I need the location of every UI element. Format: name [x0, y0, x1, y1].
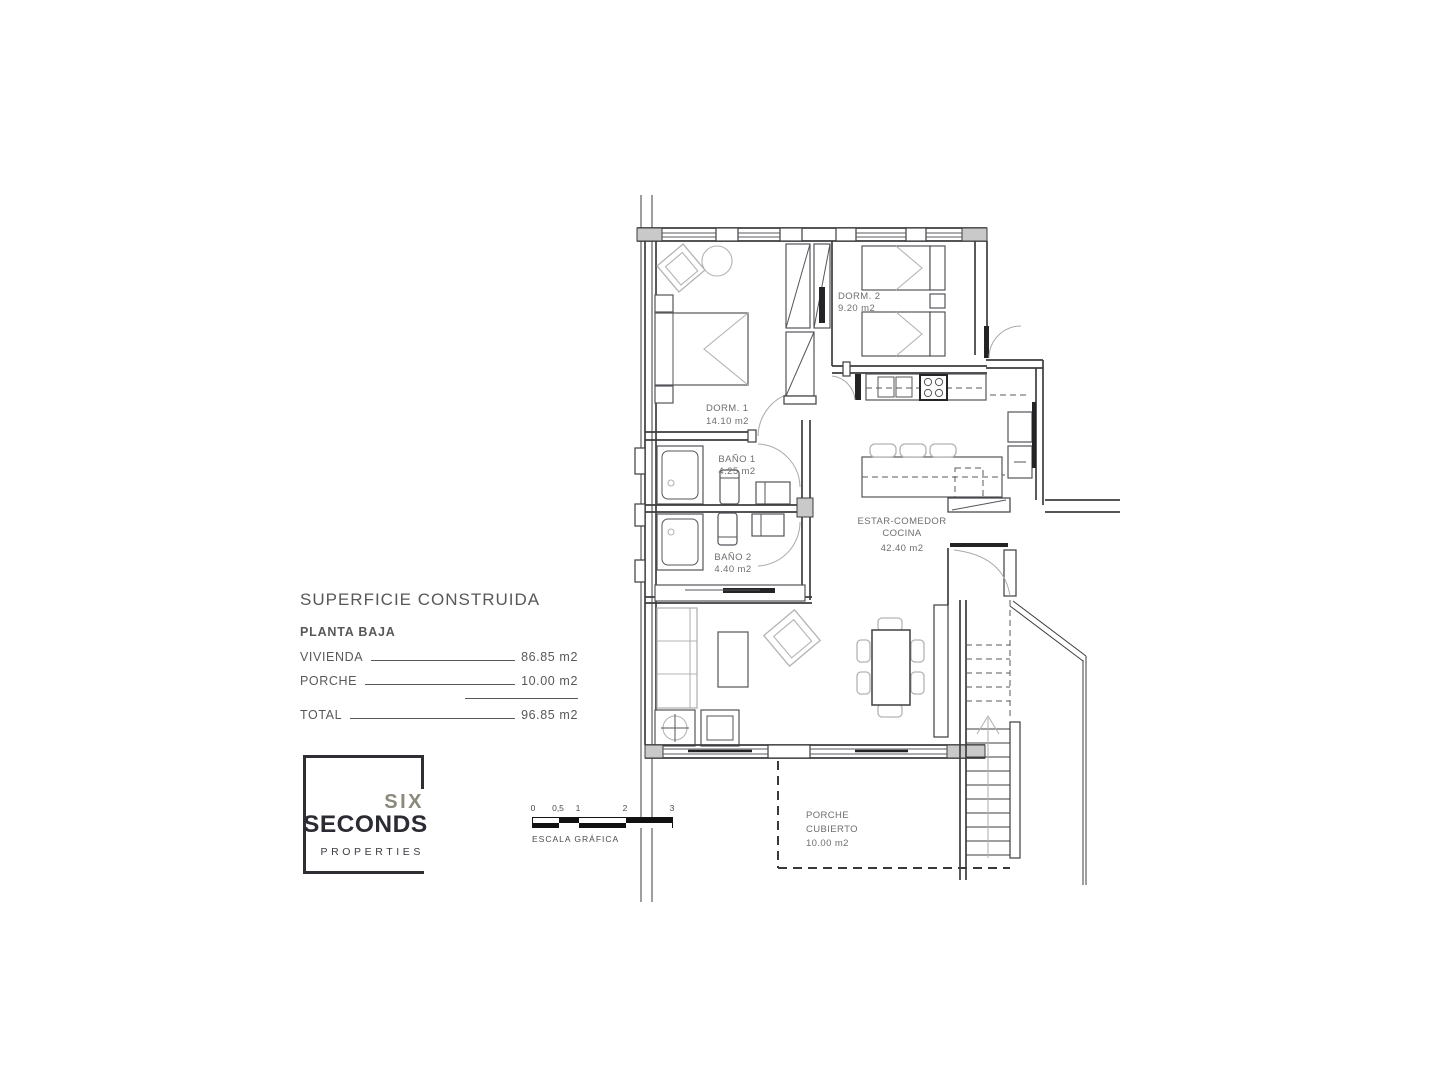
armchair-icon — [657, 244, 705, 292]
floor-plan: DORM. 1 14.10 m2 — [0, 0, 1440, 1080]
site-boundary-left — [641, 195, 652, 902]
summary-row-porche: PORCHE 10.00 m2 — [300, 673, 578, 689]
logo-text: SIX SECONDS PROPERTIES — [303, 791, 424, 858]
bano2-label: BAÑO 2 — [714, 552, 751, 563]
logo-properties: PROPERTIES — [303, 846, 424, 858]
leader-line — [365, 673, 515, 686]
leader-line — [371, 648, 515, 661]
porch-label2: CUBIERTO — [806, 824, 858, 835]
bano1-area: 4.25 m2 — [718, 466, 755, 477]
room-estar-label: ESTAR-COMEDOR COCINA 42.40 m2 — [858, 516, 947, 554]
row-label: PORCHE — [300, 674, 357, 688]
row-value: 10.00 m2 — [521, 674, 578, 688]
logo-seconds: SECONDS — [303, 813, 424, 838]
south-wall — [645, 745, 985, 758]
six-seconds-logo: SIX SECONDS PROPERTIES — [303, 755, 424, 874]
estar-label: ESTAR-COMEDOR — [858, 516, 947, 527]
scale-tick: 0 — [531, 803, 536, 813]
dorm1-area: 14.10 m2 — [706, 416, 749, 427]
west-wall — [635, 241, 656, 745]
summary-row-total: TOTAL 96.85 m2 — [300, 706, 578, 722]
bano2-area: 4.40 m2 — [714, 564, 751, 575]
staircase — [960, 600, 1086, 885]
stair-up-arrow-icon — [977, 716, 999, 858]
dorm1-label: DORM. 1 — [706, 403, 748, 414]
page: DORM. 1 14.10 m2 — [0, 0, 1440, 1080]
dining-set — [857, 618, 924, 717]
room-bano1: BAÑO 1 4.25 m2 — [657, 444, 800, 504]
dorm2-area: 9.20 m2 — [838, 303, 875, 314]
logo-frame-right — [421, 755, 424, 789]
north-wall — [637, 228, 987, 241]
estar-area: 42.40 m2 — [881, 543, 924, 554]
living-room — [655, 585, 820, 746]
logo-frame-bottom — [303, 871, 424, 874]
row-value: 86.85 m2 — [521, 650, 578, 664]
logo-six: SIX — [303, 791, 424, 813]
summary-floor: PLANTA BAJA — [300, 625, 578, 639]
graphic-scale: 0 0,5 1 2 3 ESCALA GRÁFICA — [532, 803, 692, 844]
stove-icon — [920, 375, 947, 400]
leader-line — [350, 706, 515, 719]
room-dorm1: DORM. 1 14.10 m2 — [645, 244, 803, 442]
estar-label2: COCINA — [882, 528, 922, 539]
armchair2-icon — [764, 610, 820, 666]
row-value: 96.85 m2 — [521, 708, 578, 722]
scale-tick: 1 — [576, 803, 581, 813]
porch: PORCHE CUBIERTO 10.00 m2 — [778, 761, 1010, 868]
east-partition — [934, 498, 1120, 737]
summary-row-vivienda: VIVIENDA 86.85 m2 — [300, 648, 578, 664]
subtotal-rule — [465, 698, 578, 699]
scale-tick: 2 — [623, 803, 628, 813]
scale-tick: 0,5 — [552, 803, 564, 813]
scale-bar — [532, 817, 673, 828]
porch-label: PORCHE — [806, 810, 849, 821]
scale-tick: 3 — [670, 803, 675, 813]
bano1-label: BAÑO 1 — [718, 454, 755, 465]
scale-ticks: 0 0,5 1 2 3 — [532, 803, 692, 815]
row-label: TOTAL — [300, 708, 342, 722]
wardrobes — [784, 241, 832, 404]
scale-caption: ESCALA GRÁFICA — [532, 834, 692, 844]
logo-frame-top — [303, 755, 424, 758]
summary-title: SUPERFICIE CONSTRUIDA — [300, 590, 578, 610]
dorm2-label: DORM. 2 — [838, 291, 880, 302]
surface-summary: SUPERFICIE CONSTRUIDA PLANTA BAJA VIVIEN… — [300, 590, 578, 722]
row-label: VIVIENDA — [300, 650, 363, 664]
porch-area: 10.00 m2 — [806, 838, 849, 849]
